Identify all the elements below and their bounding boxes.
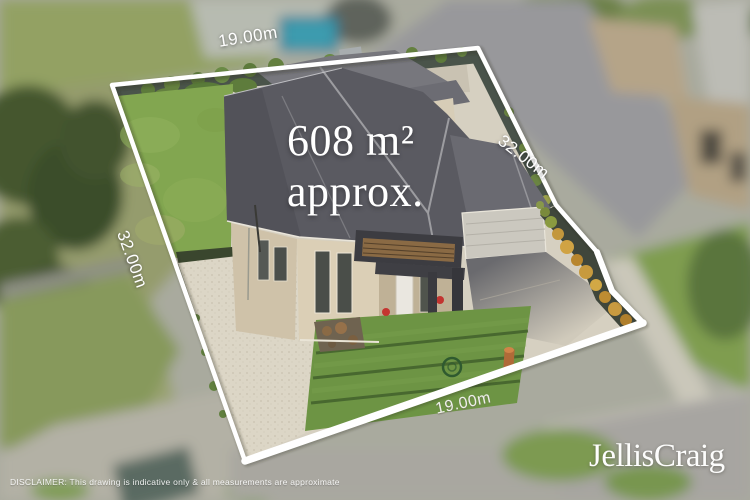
pool-water — [284, 21, 334, 48]
downpipe — [248, 228, 249, 300]
aerial-scene — [0, 0, 750, 500]
garage-door — [462, 207, 546, 259]
area-value: 608 m² — [287, 116, 424, 167]
flower-pot — [382, 308, 390, 316]
side-door — [274, 247, 287, 281]
agency-logo: JellisCraig — [589, 438, 725, 475]
disclaimer-text: DISCLAIMER: This drawing is indicative o… — [10, 477, 340, 487]
dark-window — [730, 152, 746, 182]
timber-post-top — [504, 347, 514, 353]
entry-door — [396, 274, 413, 318]
front-window — [315, 251, 330, 313]
area-label: 608 m² approx. — [287, 116, 424, 217]
dark-window — [700, 130, 722, 164]
flower-pot — [436, 296, 444, 304]
aerial-photo: 19.00m 32.00m 32.00m 19.00m 608 m² appro… — [0, 0, 750, 500]
front-window — [337, 253, 352, 313]
area-qualifier: approx. — [287, 167, 424, 218]
